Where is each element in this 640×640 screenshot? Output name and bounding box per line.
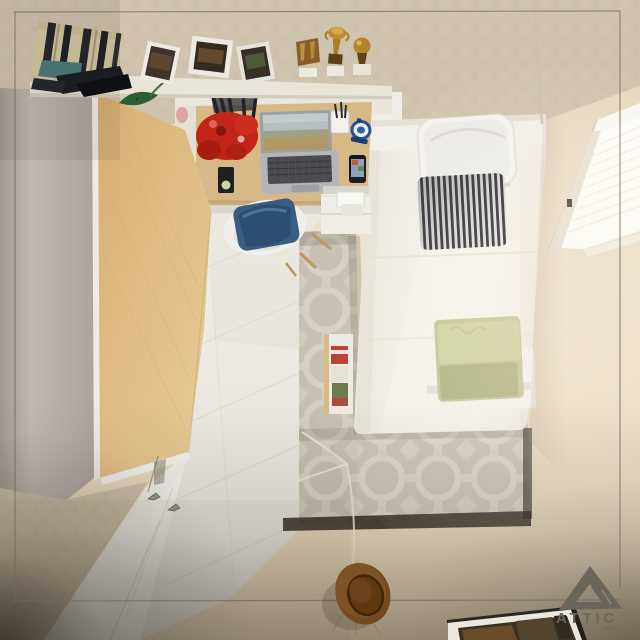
- svg-text:studio: studio: [604, 626, 618, 632]
- svg-text:ATTIC: ATTIC: [556, 610, 618, 627]
